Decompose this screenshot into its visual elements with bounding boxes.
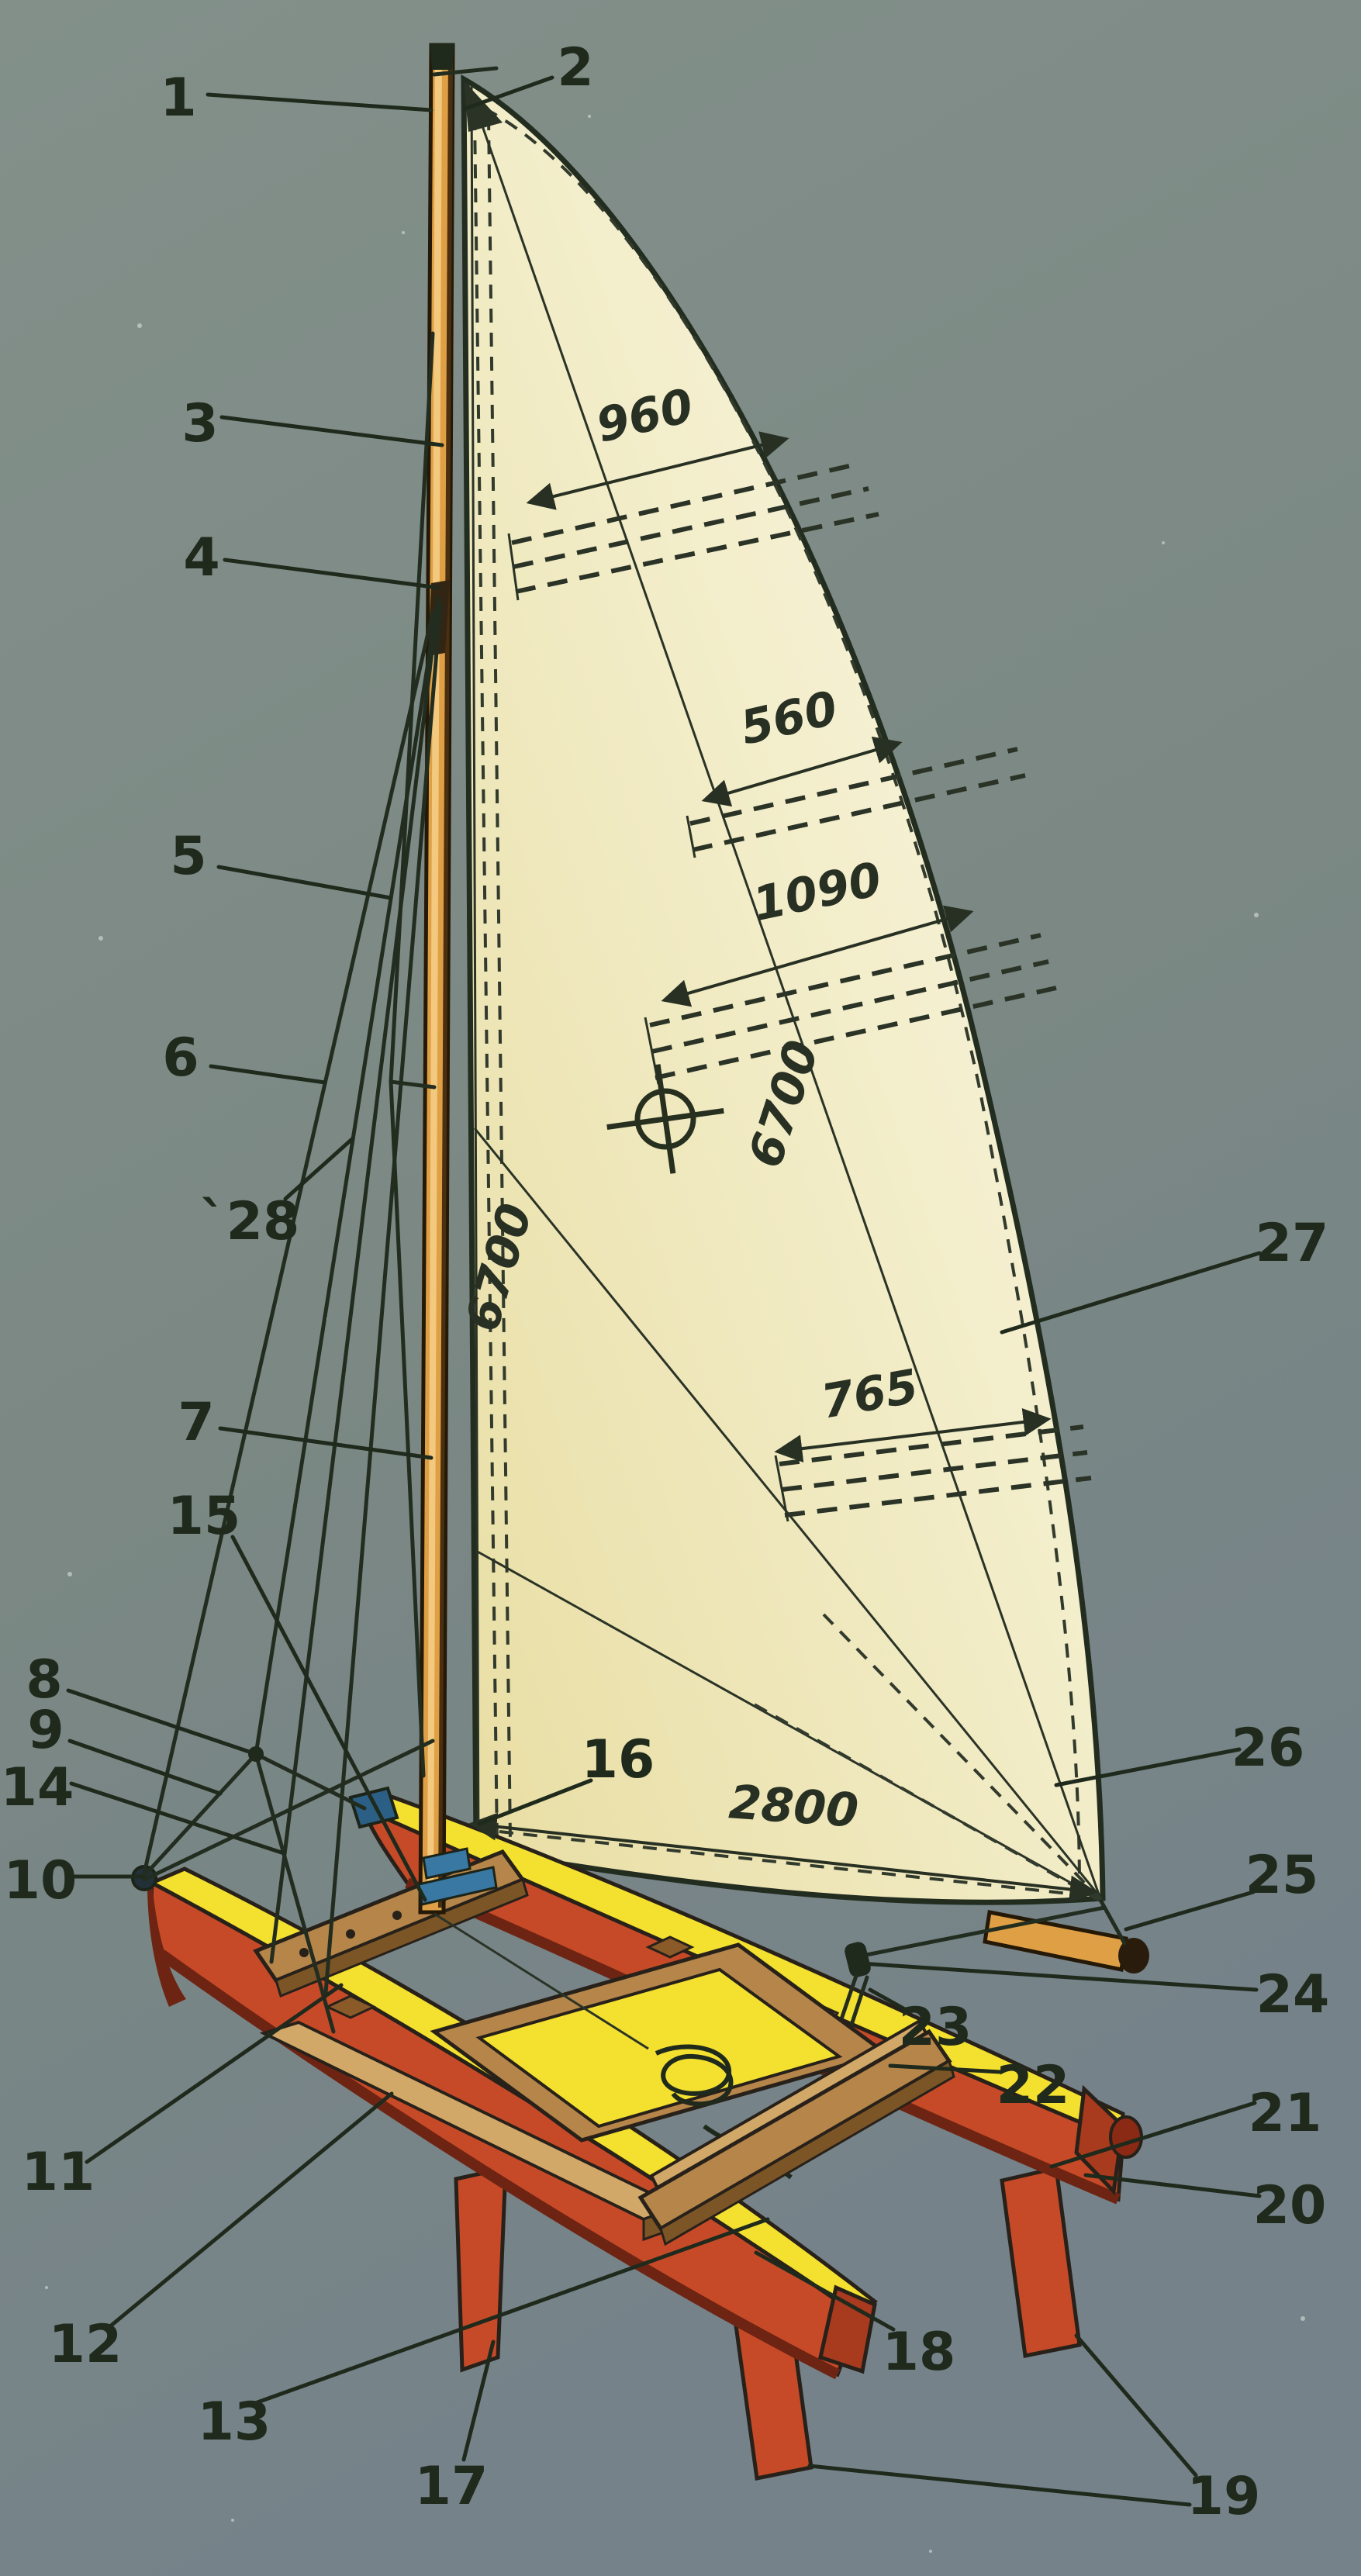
callout-4-label: 4 [183, 527, 219, 589]
diagram-page: 9605601090765280067006700 123456`2871589… [0, 0, 1361, 2576]
catamaran-diagram: 9605601090765280067006700 123456`2871589… [0, 0, 1361, 2576]
callout-13-label: 13 [198, 2391, 271, 2453]
callout-27-label: 27 [1256, 1213, 1329, 1274]
port-stern-fitting [1111, 2117, 1142, 2157]
callout-14-label: 14 [1, 1757, 74, 1818]
callout-1-label: 1 [160, 67, 196, 129]
callout-20-label: 20 [1253, 2175, 1327, 2236]
callout-22-label: 22 [997, 2055, 1070, 2116]
callout-11-label: 11 [22, 2142, 95, 2203]
callout-12-label: 12 [49, 2314, 123, 2375]
callout-16-label: 16 [582, 1729, 655, 1790]
callout-15-label: 15 [168, 1486, 241, 1547]
callout-26-label: 26 [1231, 1718, 1305, 1779]
callout-10-label: 10 [4, 1850, 78, 1911]
callout-9-label: 9 [27, 1700, 64, 1761]
callout-25-label: 25 [1245, 1845, 1319, 1906]
callout-24-label: 24 [1256, 1964, 1330, 2025]
callout-5-label: 5 [170, 826, 206, 887]
callout-6-label: 6 [162, 1027, 199, 1089]
callout-21-label: 21 [1249, 2083, 1322, 2144]
callout-7-label: 7 [178, 1392, 214, 1453]
starboard-fin [456, 2168, 506, 2370]
callout-17-label: 17 [415, 2456, 489, 2517]
callout-23-label: 23 [899, 1997, 972, 2058]
callout-28-label: `28 [200, 1191, 300, 1252]
callout-18-label: 18 [883, 2322, 956, 2383]
masthead-cap [430, 43, 454, 70]
callout-19-label: 19 [1187, 2466, 1261, 2527]
dim-d2800-label: 2800 [727, 1775, 860, 1838]
callout-2-label: 2 [557, 37, 593, 98]
callout-3-label: 3 [181, 393, 218, 454]
